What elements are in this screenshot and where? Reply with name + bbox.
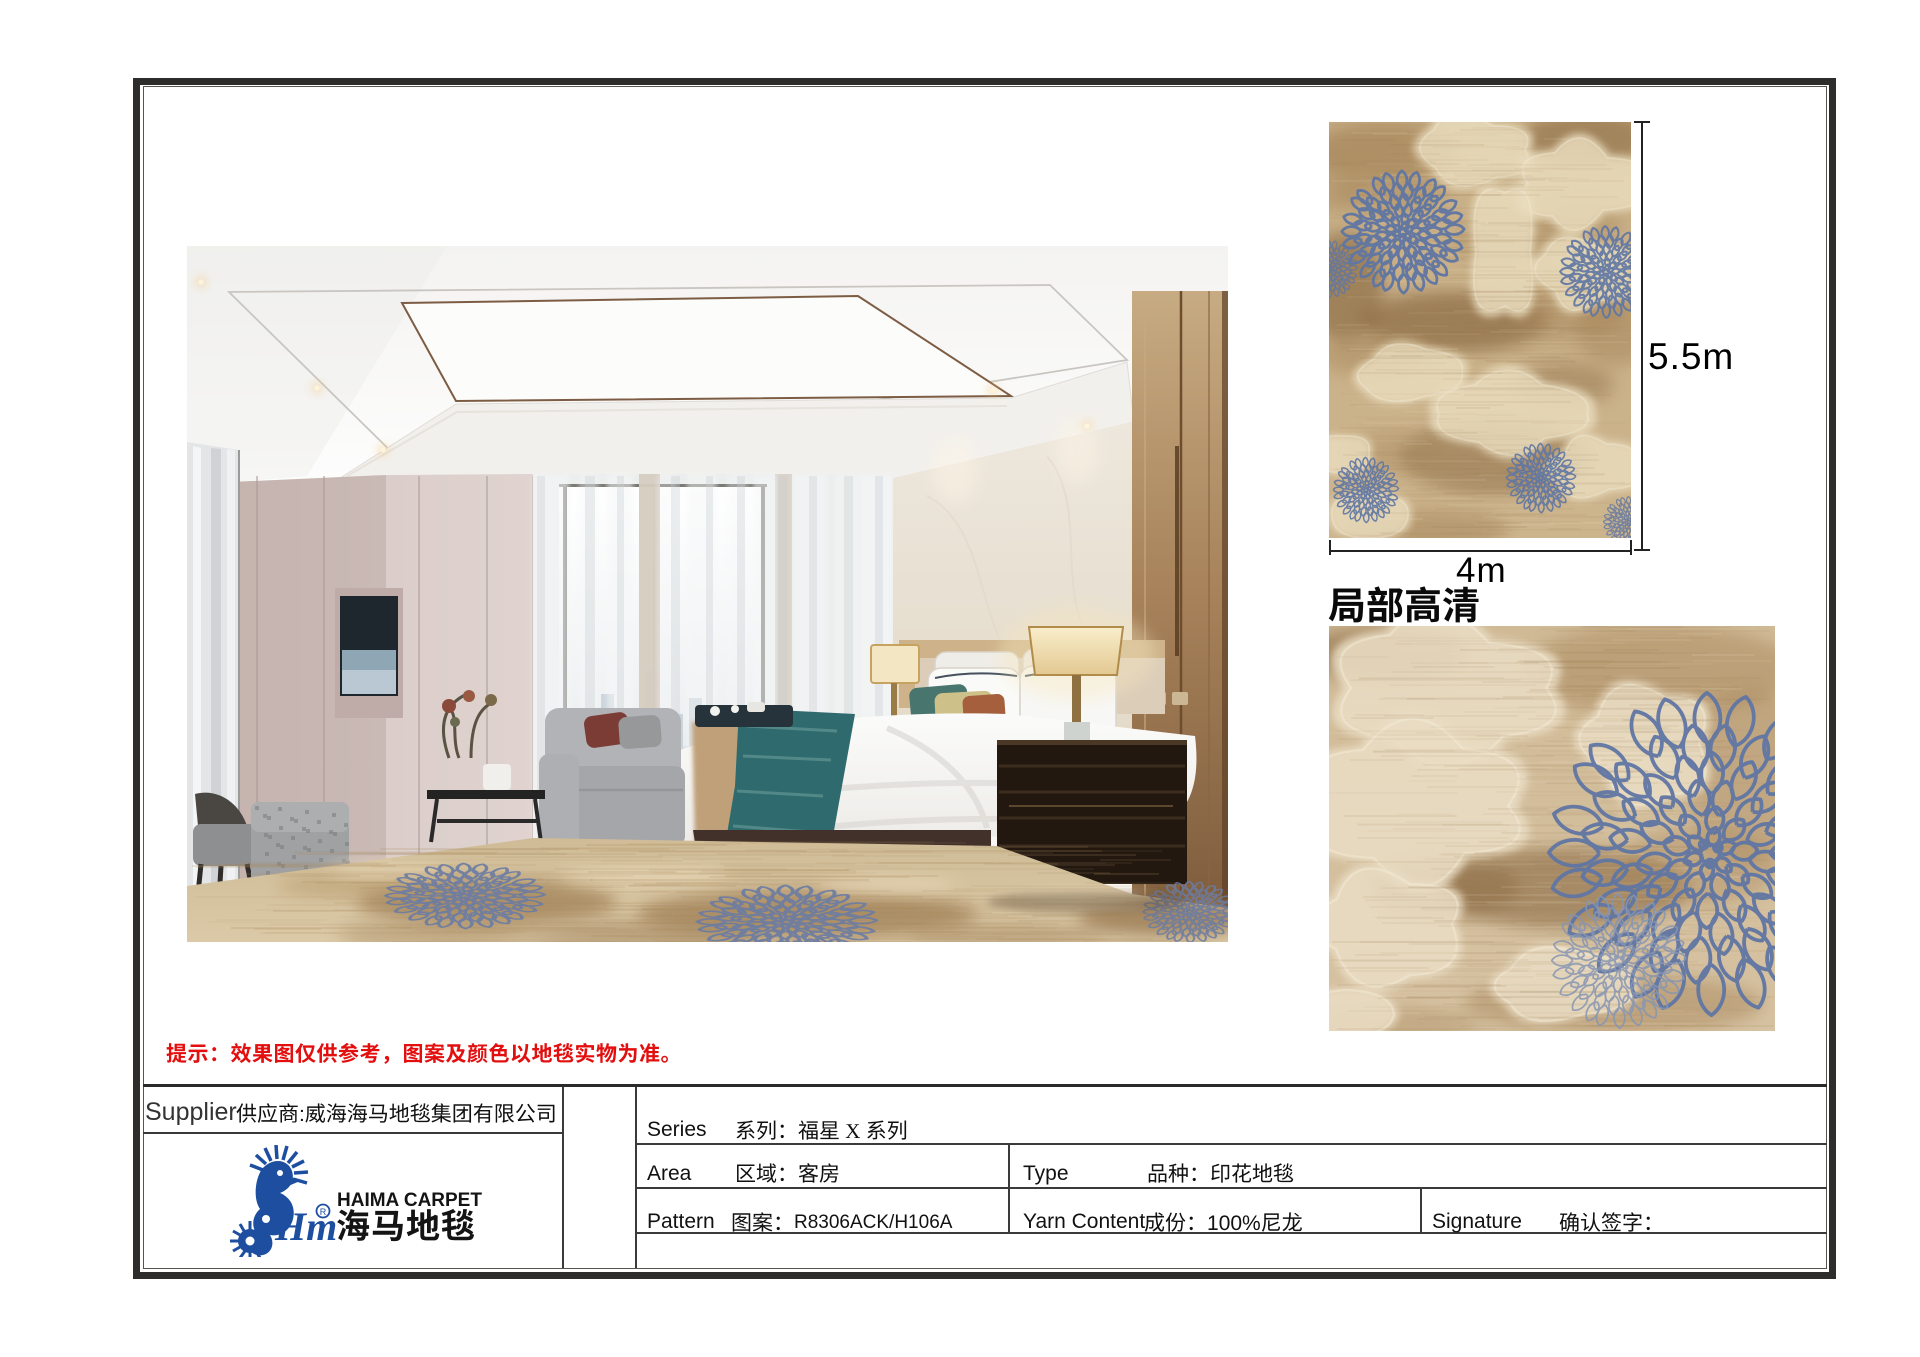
svg-text:Hm: Hm (274, 1204, 337, 1249)
svg-text:R: R (320, 1207, 327, 1217)
svg-text:HAIMA CARPET: HAIMA CARPET (337, 1190, 482, 1211)
